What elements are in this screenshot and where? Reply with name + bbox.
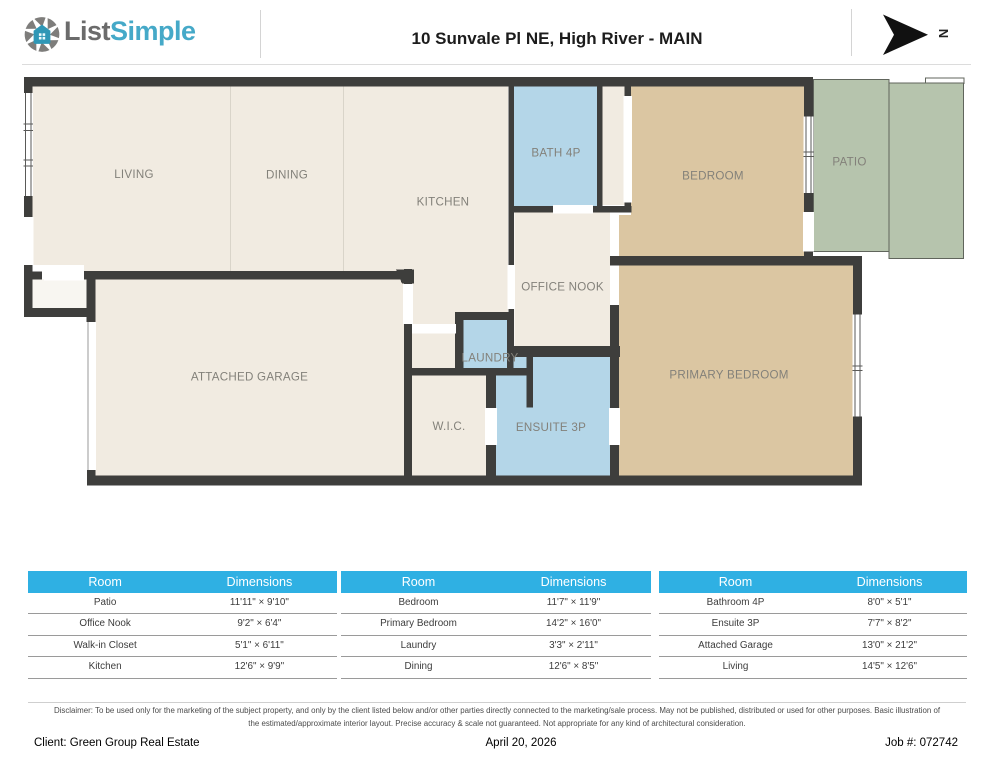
svg-text:ENSUITE 3P: ENSUITE 3P xyxy=(516,421,586,434)
svg-text:W.I.C.: W.I.C. xyxy=(432,420,465,433)
svg-text:BATH 4P: BATH 4P xyxy=(531,147,580,160)
svg-text:DINING: DINING xyxy=(266,169,308,182)
svg-text:PATIO: PATIO xyxy=(832,156,866,169)
svg-text:OFFICE NOOK: OFFICE NOOK xyxy=(521,281,604,294)
svg-text:PRIMARY BEDROOM: PRIMARY BEDROOM xyxy=(669,369,788,382)
svg-text:KITCHEN: KITCHEN xyxy=(417,196,470,209)
svg-text:LIVING: LIVING xyxy=(114,168,154,181)
svg-text:LAUNDRY: LAUNDRY xyxy=(462,352,519,365)
svg-text:ATTACHED GARAGE: ATTACHED GARAGE xyxy=(191,371,308,384)
svg-text:BEDROOM: BEDROOM xyxy=(682,170,744,183)
